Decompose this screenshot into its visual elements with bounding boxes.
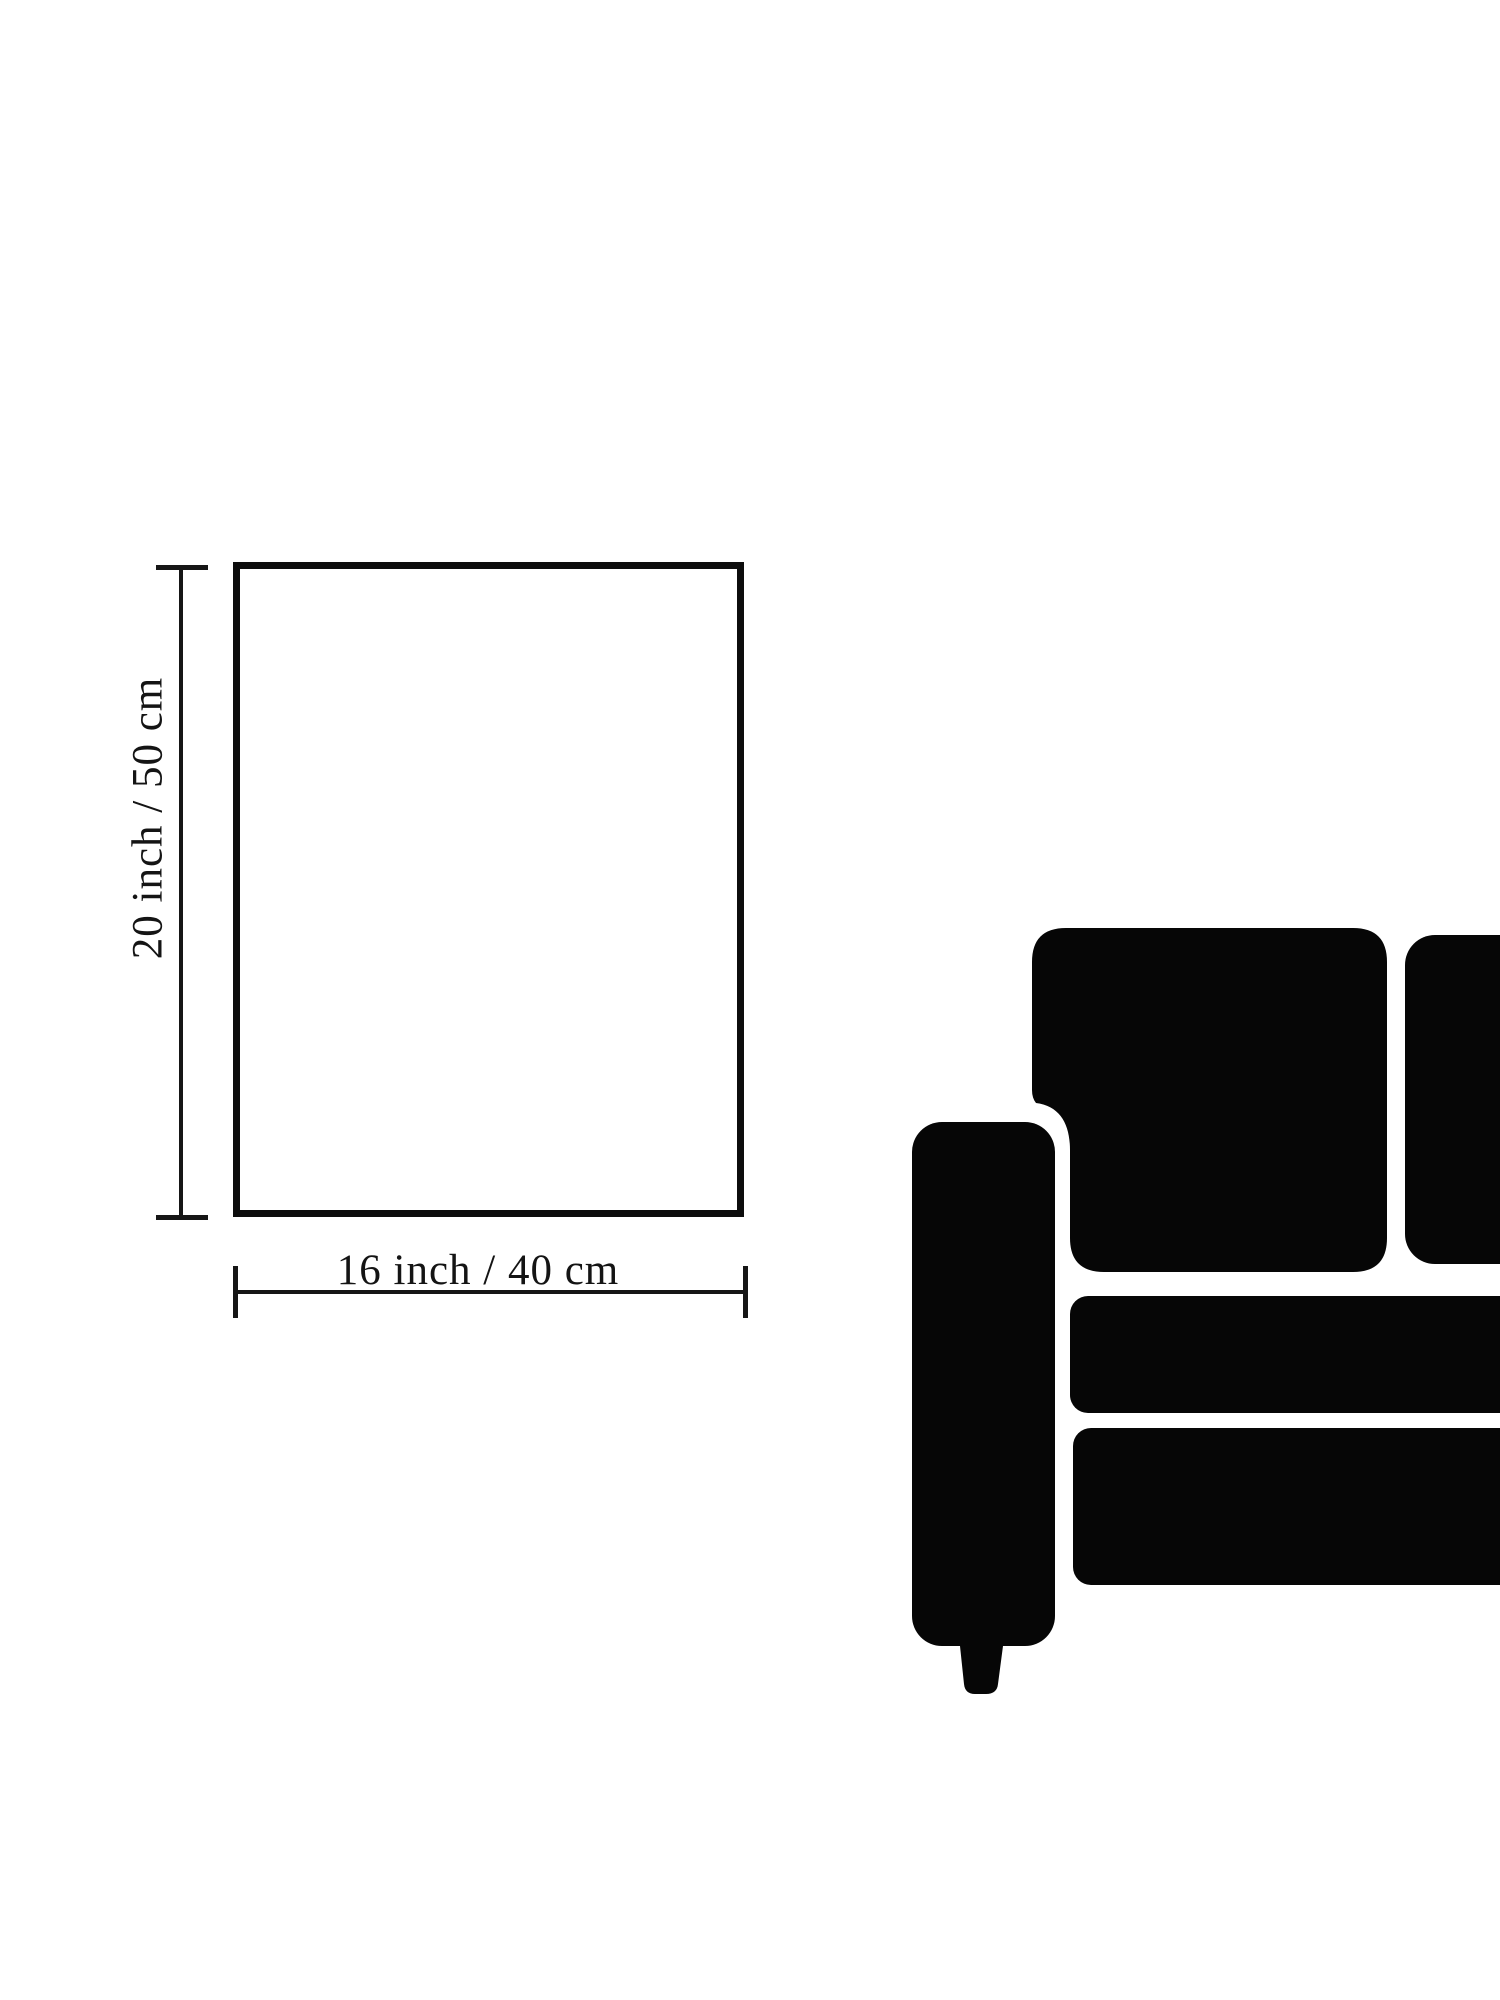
sofa-foot	[960, 1646, 1003, 1694]
sofa-armrest	[912, 1122, 1055, 1646]
height-dimension-label: 20 inch / 50 cm	[124, 677, 171, 960]
width-dimension-left-tick	[233, 1266, 238, 1318]
width-dimension-right-tick	[743, 1266, 748, 1318]
sofa-silhouette	[890, 900, 1500, 1710]
sofa-back-cushion-left	[1032, 928, 1387, 1272]
size-reference-frame	[233, 562, 744, 1217]
height-dimension-bottom-cap	[156, 1215, 208, 1220]
sofa-seat-cushion-bottom	[1073, 1428, 1500, 1585]
sofa-back-cushion-right	[1405, 935, 1500, 1264]
height-dimension-line	[179, 567, 183, 1218]
size-guide-image: 20 inch / 50 cm 16 inch / 40 cm	[0, 0, 1500, 2000]
sofa-seat-cushion-top	[1070, 1296, 1500, 1413]
width-dimension-label: 16 inch / 40 cm	[337, 1247, 620, 1294]
height-dimension-top-cap	[156, 565, 208, 570]
